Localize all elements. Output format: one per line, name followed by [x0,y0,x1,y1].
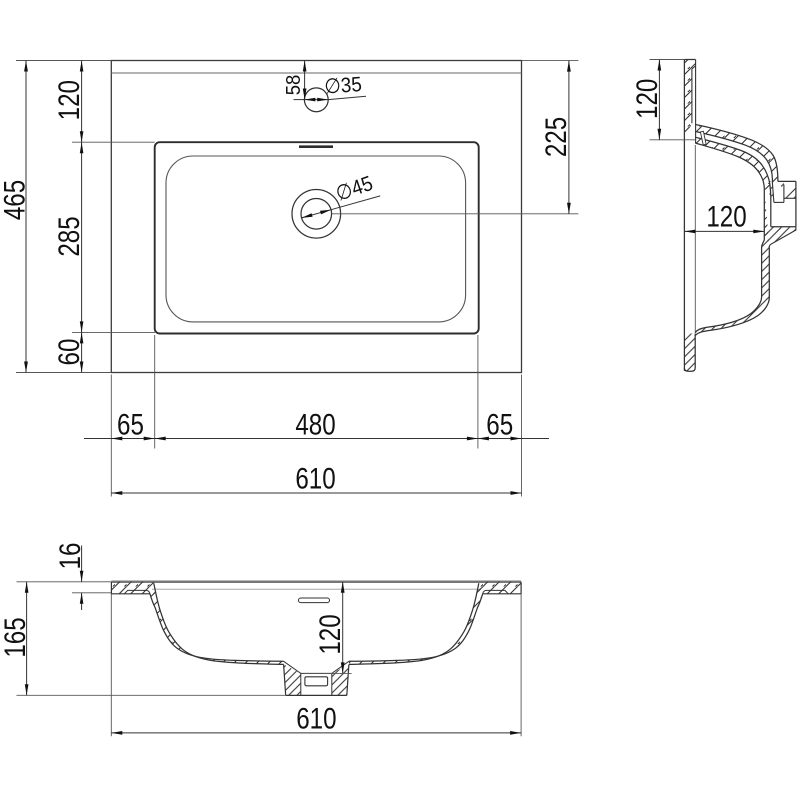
svg-text:465: 465 [0,180,31,220]
svg-text:58: 58 [282,75,305,96]
svg-text:120: 120 [706,200,746,233]
svg-text:610: 610 [295,462,335,495]
svg-text:480: 480 [295,408,335,441]
svg-text:120: 120 [314,614,347,654]
svg-text:120: 120 [53,80,86,120]
svg-text:225: 225 [540,117,573,157]
svg-text:60: 60 [53,339,86,366]
svg-text:65: 65 [486,408,513,441]
svg-text:165: 165 [0,617,32,657]
svg-text:∅45: ∅45 [333,172,376,206]
svg-text:∅35: ∅35 [324,73,363,99]
svg-text:16: 16 [54,543,87,570]
svg-text:65: 65 [117,408,144,441]
svg-text:120: 120 [631,79,664,119]
svg-text:610: 610 [296,702,336,735]
svg-text:285: 285 [53,216,86,256]
